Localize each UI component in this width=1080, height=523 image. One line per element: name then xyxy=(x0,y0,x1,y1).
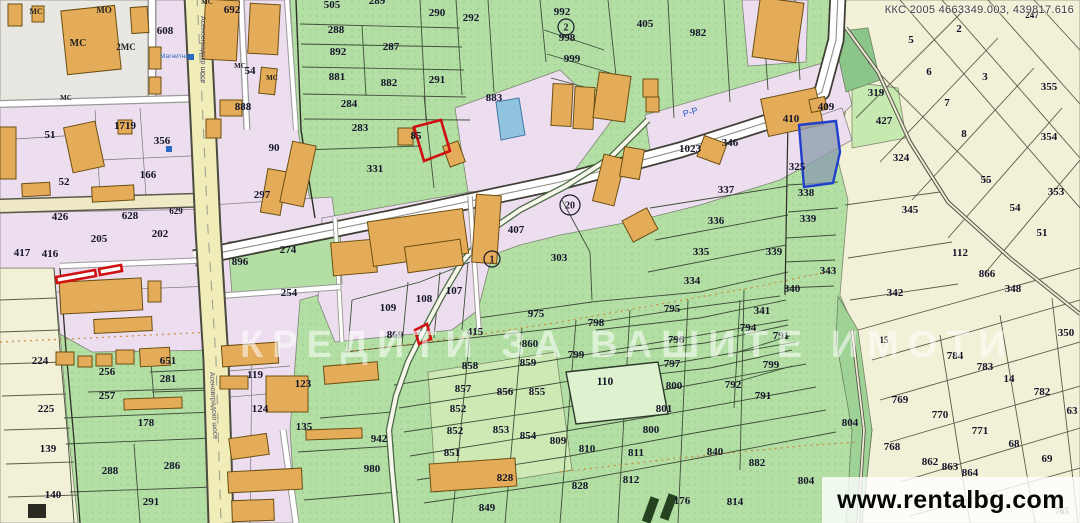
parcel-label: 800 xyxy=(643,424,660,436)
parcel-label: 840 xyxy=(707,446,724,458)
parcel-label: 809 xyxy=(550,435,567,447)
parcel-110-outline xyxy=(566,362,668,424)
parcel-label: 782 xyxy=(1034,386,1051,398)
parcel-label: 166 xyxy=(140,169,157,181)
parcel-label: 350 xyxy=(1058,327,1075,339)
parcel-label: 862 xyxy=(922,456,939,468)
parcel-label: 341 xyxy=(754,305,771,317)
parcel-label: 290 xyxy=(429,7,446,19)
parcel-label: 331 xyxy=(367,163,384,175)
parcel-label: 289 xyxy=(369,0,386,7)
parcel-label: 334 xyxy=(684,275,701,287)
parcel-label: 812 xyxy=(623,474,640,486)
parcel-label: 139 xyxy=(40,443,57,455)
parcel-label: 225 xyxy=(38,403,55,415)
parcel-label: 505 xyxy=(324,0,341,11)
parcel-label: 881 xyxy=(329,71,346,83)
parcel-label: 882 xyxy=(381,77,398,89)
parcel-label: 851 xyxy=(444,447,461,459)
circled-number-label: 20 xyxy=(565,201,575,212)
building xyxy=(228,468,303,493)
building xyxy=(593,72,631,122)
parcel-label: 857 xyxy=(455,383,472,395)
parcel-label: 336 xyxy=(708,215,725,227)
parcel-label: 692 xyxy=(224,4,241,16)
parcel-label: 55 xyxy=(981,174,993,186)
building xyxy=(78,356,92,367)
parcel-label: 254 xyxy=(281,287,298,299)
parcel-label: 417 xyxy=(14,247,31,259)
parcel-label: 856 xyxy=(497,386,514,398)
parcel-label: 110 xyxy=(597,376,614,388)
building xyxy=(220,376,248,389)
parcel-label: 6 xyxy=(926,66,932,78)
parcel-label: 863 xyxy=(942,461,959,473)
parcel-label: 792 xyxy=(725,379,742,391)
parcel-label: 783 xyxy=(977,361,994,373)
parcel-label: 355 xyxy=(1041,81,1058,93)
parcel-label: 119 xyxy=(247,369,263,381)
parcel-label: 287 xyxy=(383,41,400,53)
building xyxy=(96,354,112,366)
parcel-label: 804 xyxy=(798,475,815,487)
parcel-label: 69 xyxy=(1042,453,1054,465)
building xyxy=(56,352,74,365)
map-coordinates-text: ККС 2005 4663349.003, 439817.616 xyxy=(885,4,1074,16)
parcel-label: 982 xyxy=(690,27,707,39)
site-watermark-band: www.rentalbg.com xyxy=(822,477,1080,523)
parcel-label: 335 xyxy=(693,246,710,258)
parcel-label: 849 xyxy=(479,502,496,514)
parcel-label: 791 xyxy=(773,330,790,342)
parcel-label: 3 xyxy=(982,71,988,83)
parcel-label: 8 xyxy=(961,128,967,140)
building xyxy=(22,182,51,196)
parcel-label: 256 xyxy=(99,366,116,378)
parcel-label: 325 xyxy=(789,161,806,173)
street-name-label: Магнитна xyxy=(160,53,189,60)
parcel-label: 771 xyxy=(972,425,989,437)
parcel-label: 205 xyxy=(91,233,108,245)
building xyxy=(752,0,804,63)
building xyxy=(148,281,161,302)
parcel-label: МС xyxy=(70,38,87,49)
parcel-label: 794 xyxy=(740,322,757,334)
parcel-label: 7 xyxy=(944,97,950,109)
parcel-label: 2МС xyxy=(116,42,136,52)
parcel-label: 339 xyxy=(800,213,817,225)
parcel-label: 859 xyxy=(520,357,537,369)
building xyxy=(248,3,281,55)
parcel-label: 415 xyxy=(467,326,484,338)
parcel-label: 770 xyxy=(932,409,949,421)
parcel-label: 1719 xyxy=(114,120,137,132)
parcel-label: 892 xyxy=(330,46,347,58)
parcel-label: 801 xyxy=(656,403,673,415)
parcel-label: 651 xyxy=(160,355,177,367)
parcel-label: 281 xyxy=(160,373,177,385)
parcel-label: 288 xyxy=(328,24,345,36)
parcel-label: 303 xyxy=(551,252,568,264)
parcel-label: МС xyxy=(201,0,213,6)
parcel-label: 283 xyxy=(352,122,369,134)
parcel-label: 286 xyxy=(164,460,181,472)
parcel-label: 108 xyxy=(416,293,433,305)
building xyxy=(646,97,659,112)
site-url-text: www.rentalbg.com xyxy=(837,486,1065,515)
parcel-label: 852 xyxy=(450,403,467,415)
parcel-label: 5 xyxy=(908,34,914,46)
parcel-label: 409 xyxy=(818,101,835,113)
building xyxy=(221,342,278,367)
parcel-label: 54 xyxy=(1010,202,1022,214)
parcel-label: 814 xyxy=(727,496,744,508)
parcel-label: 853 xyxy=(493,424,510,436)
parcel-label: 855 xyxy=(529,386,546,398)
parcel-label: 202 xyxy=(152,228,169,240)
parcel-label: 882 xyxy=(749,457,766,469)
building xyxy=(116,350,134,364)
parcel-label: 274 xyxy=(280,244,297,256)
parcel-label: 852 xyxy=(447,425,464,437)
parcel-label: 860 xyxy=(522,338,539,350)
parcel-label: 405 xyxy=(637,18,654,30)
cadastral-map[interactable]: 2201МОМСМС2МСМСМСМСМС6086925488817195135… xyxy=(0,0,1080,523)
parcel-label: МС xyxy=(266,74,278,82)
parcel-label: 810 xyxy=(579,443,596,455)
parcel-label: 123 xyxy=(295,378,312,390)
parcel-label: 768 xyxy=(884,441,901,453)
parcel-label: 883 xyxy=(486,92,503,104)
building xyxy=(92,185,135,202)
parcel-label: 975 xyxy=(528,308,545,320)
parcel-label: 63 xyxy=(1067,405,1079,417)
parcel-label: 1023 xyxy=(679,143,702,155)
parcel-label: 608 xyxy=(157,25,174,37)
parcel-label: 769 xyxy=(892,394,909,406)
parcel-label: 854 xyxy=(520,430,537,442)
parcel-label: 291 xyxy=(143,496,160,508)
parcel-label: 980 xyxy=(364,463,381,475)
building xyxy=(149,77,161,94)
parcel-label: 346 xyxy=(722,137,739,149)
parcel-label: 353 xyxy=(1048,186,1065,198)
parcel-label: 51 xyxy=(1037,227,1048,239)
parcel-label: 354 xyxy=(1041,131,1058,143)
parcel-label: 828 xyxy=(497,472,514,484)
parcel-label: 109 xyxy=(380,302,397,314)
parcel-label: 337 xyxy=(718,184,735,196)
parcel-label: 297 xyxy=(254,189,271,201)
street-name-label: Асеновградско шосе xyxy=(199,16,206,83)
parcel-label: 338 xyxy=(798,187,815,199)
parcel-label: 811 xyxy=(628,447,644,459)
parcel-label: 176 xyxy=(674,495,691,507)
parcel-label: 2 xyxy=(956,23,962,35)
parcel-label: 804 xyxy=(842,417,859,429)
parcel-label: 292 xyxy=(463,12,480,24)
parcel-label: МО xyxy=(96,5,112,15)
parcel-label: 410 xyxy=(783,113,800,125)
parcel-label: 858 xyxy=(462,360,479,372)
map-mark xyxy=(188,54,194,60)
building xyxy=(124,397,182,410)
parcel-label: 784 xyxy=(947,350,964,362)
parcel-label: 896 xyxy=(232,256,249,268)
parcel-label: МС xyxy=(60,94,72,102)
parcel-label: 869 xyxy=(387,329,404,341)
parcel-label: 178 xyxy=(138,417,155,429)
parcel-label: 796 xyxy=(668,334,685,346)
parcel-label: 348 xyxy=(1005,283,1022,295)
building xyxy=(551,84,573,127)
building xyxy=(130,6,149,33)
circled-number-label: 1 xyxy=(490,255,495,266)
parcel-label: 288 xyxy=(102,465,119,477)
building xyxy=(306,428,362,440)
parcel-label: 135 xyxy=(296,421,313,433)
parcel-label: 800 xyxy=(666,380,683,392)
building xyxy=(232,499,275,521)
parcel-label: 324 xyxy=(893,152,910,164)
parcel-label: 54 xyxy=(245,65,257,77)
parcel-label: 257 xyxy=(99,390,116,402)
parcel-label: 407 xyxy=(508,224,525,236)
parcel-label: 124 xyxy=(252,403,269,415)
map-mark xyxy=(28,504,46,518)
parcel-label: 319 xyxy=(868,87,885,99)
parcel-label: 798 xyxy=(588,317,605,329)
parcel-label: 799 xyxy=(568,349,585,361)
parcel-label: МС xyxy=(29,7,43,16)
parcel-label: 427 xyxy=(876,115,893,127)
parcel-label: 416 xyxy=(42,248,59,260)
parcel-label: 992 xyxy=(554,6,571,18)
parcel-label: 284 xyxy=(341,98,358,110)
parcel-label: 342 xyxy=(887,287,904,299)
parcel-label: 224 xyxy=(32,355,49,367)
building xyxy=(206,119,221,138)
cadastral-map-svg[interactable]: 2201МОМСМС2МСМСМСМСМС6086925488817195135… xyxy=(0,0,1080,523)
parcel-label: 426 xyxy=(52,211,69,223)
parcel-label: 140 xyxy=(45,489,62,501)
parcel-label: 797 xyxy=(664,358,681,370)
building xyxy=(0,127,16,179)
parcel-label: 339 xyxy=(766,246,783,258)
parcel-label: 85 xyxy=(411,130,423,142)
parcel-label: 866 xyxy=(979,268,996,280)
parcel-label: 107 xyxy=(446,285,463,297)
building xyxy=(59,278,143,314)
parcel-label: 356 xyxy=(154,135,171,147)
parcel-label: 942 xyxy=(371,433,388,445)
parcel-label: 112 xyxy=(952,247,968,259)
parcel-label: 629 xyxy=(169,206,183,216)
parcel-label: 68 xyxy=(1009,438,1021,450)
parcel-label: 888 xyxy=(235,101,252,113)
building xyxy=(643,79,658,97)
parcel-label: 799 xyxy=(763,359,780,371)
parcel-label: 828 xyxy=(572,480,589,492)
parcel-label: 345 xyxy=(902,204,919,216)
highlighted-parcel-blue[interactable] xyxy=(799,121,840,187)
parcel-label: 795 xyxy=(664,303,681,315)
parcel-label: 90 xyxy=(269,142,281,154)
building xyxy=(8,4,22,26)
parcel-label: 51 xyxy=(45,129,56,141)
parcel-label: 791 xyxy=(755,390,772,402)
building xyxy=(94,316,153,333)
building xyxy=(573,87,595,130)
parcel-label: 998 xyxy=(559,32,576,44)
parcel-label: 291 xyxy=(429,74,446,86)
parcel-label: 628 xyxy=(122,210,139,222)
parcel-label: 52 xyxy=(59,176,71,188)
parcel-label: 14 xyxy=(1004,373,1016,385)
parcel-label: 340 xyxy=(784,283,801,295)
parcel-label: 999 xyxy=(564,53,581,65)
parcel-label: 15 xyxy=(880,335,890,345)
parcel-label: 343 xyxy=(820,265,837,277)
